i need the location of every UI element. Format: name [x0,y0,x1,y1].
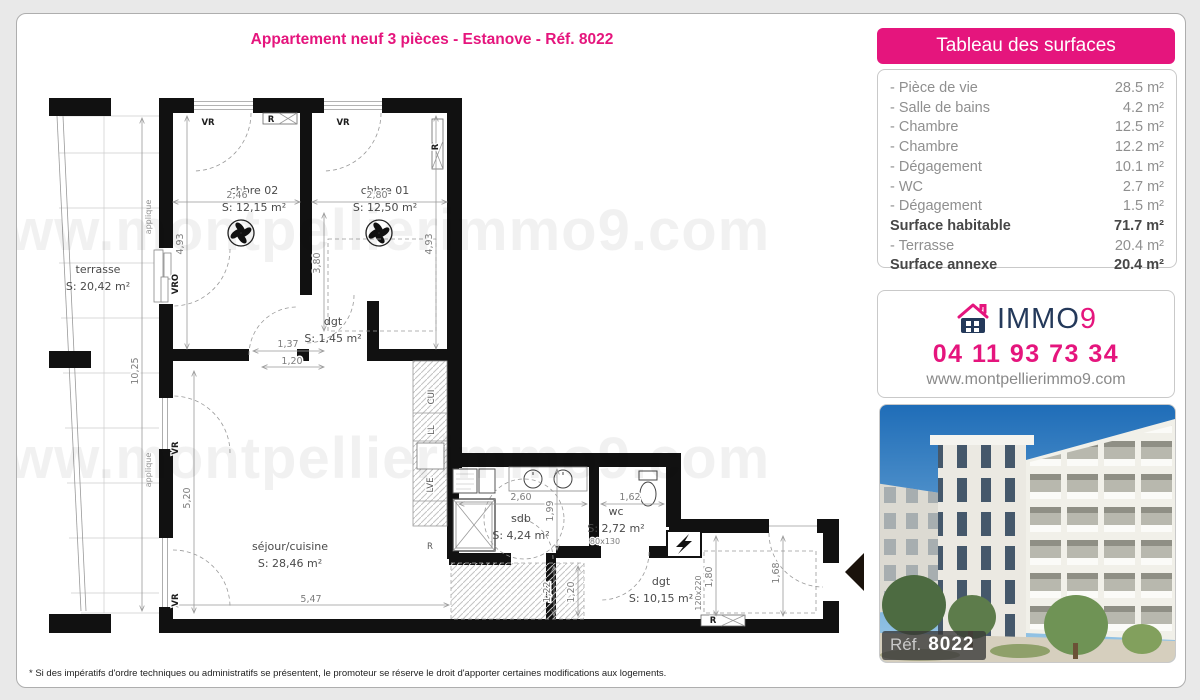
svg-text:S: 12,15 m²: S: 12,15 m² [222,201,286,214]
page: { "page": { "title": "Appartement neuf 3… [0,0,1200,700]
svg-text:4,93: 4,93 [424,233,435,254]
surface-row: - WC2.7 m² [890,178,1164,198]
surface-row: - Chambre12.5 m² [890,118,1164,138]
surface-row: - Dégagement10.1 m² [890,158,1164,178]
svg-text:5,20: 5,20 [182,487,193,508]
entrance-arrow-icon [845,553,864,591]
svg-text:2,80: 2,80 [366,190,387,201]
svg-text:1,22: 1,22 [542,581,553,602]
svg-text:S: 10,15 m²: S: 10,15 m² [629,592,693,605]
page-title: Appartement neuf 3 pièces - Estanove - R… [17,31,847,49]
closets [453,469,495,493]
svg-text:LVE: LVE [426,478,436,493]
surface-row: - Pièce de vie28.5 m² [890,79,1164,99]
svg-text:LL: LL [427,425,437,435]
surface-row: - Chambre12.2 m² [890,138,1164,158]
agency-phone: 04 11 93 73 34 [878,340,1174,369]
svg-text:10,25: 10,25 [130,357,141,384]
svg-text:séjour/cuisine: séjour/cuisine [252,540,328,553]
svg-text:wc: wc [608,505,623,518]
shower [453,499,495,551]
svg-text:S: 20,42 m²: S: 20,42 m² [66,280,130,293]
flyer-card: Appartement neuf 3 pièces - Estanove - R… [16,13,1186,688]
agency-box: IMMO9 04 11 93 73 34 www.montpellierimmo… [877,290,1175,398]
svg-text:sdb: sdb [511,512,531,525]
svg-text:dgt: dgt [324,315,343,328]
svg-text:applique: applique [144,200,153,235]
ref-number: 8022 [928,634,974,656]
agency-website-link[interactable]: www.montpellierimmo9.com [878,371,1174,389]
svg-text:S: 12,50 m²: S: 12,50 m² [353,201,417,214]
building-illustration [880,405,1175,662]
electrical-panel [667,531,701,557]
svg-text:S: 28,46 m²: S: 28,46 m² [258,557,322,570]
surfaces-header: Tableau des surfaces [877,28,1175,64]
svg-text:S: 1,45 m²: S: 1,45 m² [304,332,361,345]
svg-text:R: R [427,542,433,552]
surface-row: Surface annexe20.4 m² [890,256,1164,276]
house-icon [955,301,991,337]
svg-text:R: R [431,143,441,150]
svg-text:2,60: 2,60 [510,492,531,503]
svg-text:VR: VR [171,593,181,607]
surface-row: - Salle de bains4.2 m² [890,99,1164,119]
svg-text:R: R [268,115,275,125]
svg-text:1,20: 1,20 [566,581,577,602]
agency-logo: IMMO9 [878,301,1174,337]
svg-text:1,62: 1,62 [619,492,640,503]
svg-text:2,46: 2,46 [226,190,247,201]
svg-text:80x130: 80x130 [590,537,620,546]
brand-accent: 9 [1080,303,1097,335]
surfaces-header-label: Tableau des surfaces [936,35,1116,57]
surface-row: - Terrasse20.4 m² [890,237,1164,257]
svg-text:1,20: 1,20 [281,356,302,367]
ref-label: Réf. [890,635,921,655]
extractor-fan-icon [366,220,392,246]
brand-name: IMMO9 [997,303,1097,336]
svg-text:5,47: 5,47 [300,594,321,605]
svg-text:1,37: 1,37 [277,339,298,350]
svg-text:applique: applique [144,453,153,488]
extractor-fan-icon [228,220,254,246]
svg-text:S: 2,72 m²: S: 2,72 m² [587,522,644,535]
surface-row: Surface habitable71.7 m² [890,217,1164,237]
disclaimer-text: * Si des impératifs d'ordre techniques o… [29,668,666,679]
svg-text:VR: VR [171,441,181,455]
building-photo: Réf. 8022 [879,404,1176,663]
photo-ref-badge: Réf. 8022 [882,631,986,660]
svg-text:VR: VR [336,118,350,128]
svg-text:1,99: 1,99 [545,500,556,521]
svg-text:R: R [710,616,717,626]
surfaces-table: - Pièce de vie28.5 m²- Salle de bains4.2… [877,69,1177,268]
surface-row: - Dégagement1.5 m² [890,197,1164,217]
svg-text:120x220: 120x220 [694,575,703,610]
svg-text:CUI: CUI [427,390,437,405]
svg-text:VRO: VRO [171,274,181,294]
svg-text:4,93: 4,93 [175,233,186,254]
svg-text:3,80: 3,80 [312,252,323,273]
svg-text:VR: VR [201,118,215,128]
svg-text:1,68: 1,68 [771,562,782,583]
svg-text:dgt: dgt [652,575,671,588]
svg-text:S: 4,24 m²: S: 4,24 m² [492,529,549,542]
toilet [639,471,657,506]
svg-text:terrasse: terrasse [76,263,121,276]
svg-text:1,80: 1,80 [704,566,715,587]
